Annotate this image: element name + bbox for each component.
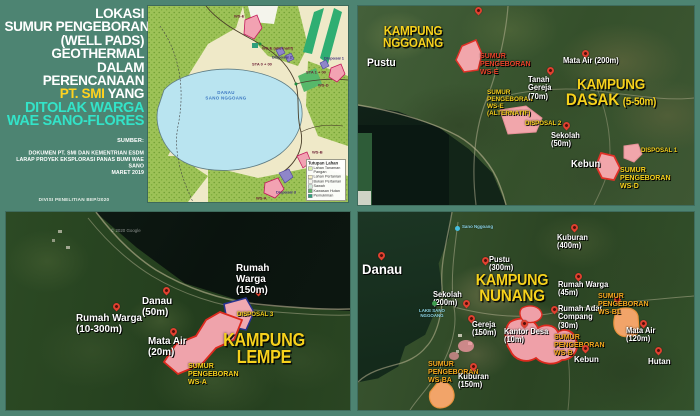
poi-label-pustu: Pustu (300m) [489, 256, 527, 273]
village-name-line: LEMPE [217, 349, 311, 366]
poi-label-rumah-warga-150: Rumah Warga (150m) [236, 263, 296, 296]
disposal-label-1: DISPOSAL 1 [641, 148, 677, 155]
building [66, 246, 70, 249]
overview-tag-ws-a: WS-A [256, 196, 267, 201]
disposal-label-2: DISPOSAL 2 [525, 121, 561, 128]
legend-chip [308, 189, 313, 193]
village-label-dasak: KAMPUNG DASAK (5-50m) [562, 78, 661, 108]
poi-label-danau: Danau [362, 262, 402, 277]
settlement-patch [252, 43, 258, 48]
building [458, 334, 462, 337]
road-node [295, 83, 298, 86]
title-panel: LOKASI SUMUR PENGEBORAN (WELL PADS) GEOT… [0, 0, 148, 210]
poi-label-kuburan-400: Kuburan (400m) [557, 234, 595, 251]
village-label-lempe: KAMPUNG LEMPE [217, 332, 311, 366]
source-line: LARAP PROYEK EKSPLORASI PANAS BUMI WAE S… [5, 156, 145, 169]
disposal-1-polygon [624, 144, 642, 162]
poi-label-sekolah: Sekolah (50m) [551, 132, 583, 149]
poi-label-gereja: Gereja (150m) [472, 321, 504, 338]
poi-label-kantor-desa: Kantor Desa (10m) [504, 328, 557, 345]
source-block: SUMBER: DOKUMEN PT. SMI DAN KEMENTRIAN E… [5, 137, 145, 175]
overview-tag-sta-1: STA 1 + 00 [306, 70, 326, 75]
poi-label-kuburan-150: Kuburan (150m) [458, 373, 496, 390]
shoreline [96, 212, 350, 309]
gmaps-label-lakeside: LAKE SANO NGGOANG [410, 308, 454, 318]
overview-tag-disposal-3: Disposal 3 [276, 190, 296, 195]
disposal-label-3: DISPOSAL 3 [237, 312, 273, 319]
lake-label: DANAU SANO NGGOANG [204, 90, 248, 101]
village-label-nunang: KAMPUNG NUNANG [467, 273, 557, 304]
poi-label-danau: Danau (50m) [142, 296, 180, 318]
well-label-ws-d: SUMUR PENGEBORAN WS-D [620, 166, 661, 190]
village-name-line: NGGOANG [380, 37, 447, 49]
overview-tag-ws-d: WS-D [318, 83, 329, 88]
legend-label: Lahan Tanaman Pangan [314, 166, 346, 174]
legend-chip [308, 166, 313, 170]
legend-chip [308, 184, 313, 188]
legend-label: Pemukiman [314, 194, 334, 198]
nunang-map-graphic [358, 212, 694, 410]
well-label-ws-e-alt: SUMUR PENGEBORAN WS-E (ALTERNATIF) [487, 89, 530, 118]
village-name-line: DASAK [566, 90, 619, 109]
overview-tag-ws-e: WS-E [234, 14, 244, 19]
poi-label-kebun: Kebun [571, 160, 600, 171]
map-panel-lempe: © 2020 Google Rumah Warga (150m) Danau (… [6, 212, 350, 410]
poi-label-sekolah: Sekolah (200m) [433, 291, 469, 308]
overview-tag-ws-e-alt: WS-E (alternatif) [262, 46, 293, 51]
overview-tag-ws-b: WS-B [312, 150, 323, 155]
legend-label: Lahan Pertanian [314, 175, 342, 179]
gmaps-label-sano-nggoang: Sano Nggoang [462, 224, 493, 229]
landcover-legend: Tutupan Lahan Lahan Tanaman Pangan Lahan… [306, 159, 346, 201]
building [52, 239, 55, 242]
lake-label-line2: SANO NGGOANG [204, 96, 248, 102]
poi-label-hutan: Hutan [648, 357, 671, 366]
map-panel-nunang: Danau Sano Nggoang Pustu (300m) Kuburan … [358, 212, 694, 410]
water-place-icon [455, 226, 460, 231]
legend-label: Sawah [314, 184, 325, 188]
source-label: SUMBER: [5, 137, 145, 143]
map-watermark: © 2020 Google [111, 228, 141, 233]
well-label-ws-b1: SUMUR PENGEBORAN WS-B1 [598, 292, 641, 316]
overview-tag-sta-0: STA 0 + 00 [252, 62, 272, 67]
poi-label-mata-air: Mata Air (200m) [563, 57, 619, 65]
overview-landuse-map: DANAU SANO NGGOANG WS-E WS-E (alternatif… [148, 6, 348, 202]
poi-label-mata-air: Mata Air (120m) [626, 327, 664, 344]
source-line: MARET 2019 [5, 169, 145, 176]
shoreline [358, 105, 506, 205]
well-label-ws-e: SUMUR PENGEBORAN WS-E [480, 52, 523, 76]
settlement-highlight [458, 340, 474, 352]
legend-item: Lahan Tanaman Pangan [308, 166, 345, 174]
wellpad-ws-ba-polygon [429, 382, 454, 408]
infographic-poster: LOKASI SUMUR PENGEBORAN (WELL PADS) GEOT… [0, 0, 700, 416]
village-distance-range: (5-50m) [623, 96, 656, 108]
poi-label-tanah-gereja: Tanah Gereja (70m) [528, 76, 566, 101]
legend-chip [308, 180, 313, 184]
wellpad-ws-e-polygon [456, 40, 482, 72]
overview-tag-disposal-1: Disposal 1 [324, 56, 344, 61]
park-place-icon [432, 301, 437, 306]
overview-tag-disposal-2: Disposal 2 [272, 55, 292, 60]
title-line-region: WAE SANO-FLORES [4, 114, 148, 127]
poi-label-pustu: Pustu [367, 58, 396, 70]
legend-chip [308, 194, 313, 198]
legend-chip [308, 175, 313, 179]
map-panel-dasak: KAMPUNG NGGOANG Pustu SUMUR PENGEBORAN W… [358, 6, 694, 205]
legend-item: Pemukiman [308, 194, 345, 198]
village-name-line: NUNANG [467, 288, 557, 304]
building [58, 230, 62, 233]
poi-label-kebun: Kebun [574, 355, 599, 364]
poi-label-mata-air: Mata Air (20m) [148, 336, 195, 358]
credit-line: DIVISI PENELITIAN BEP/2020 [31, 197, 117, 202]
village-label-nggoang: KAMPUNG NGGOANG [380, 25, 447, 50]
poi-label-rumah-warga-range: Rumah Warga (10-300m) [76, 313, 146, 335]
